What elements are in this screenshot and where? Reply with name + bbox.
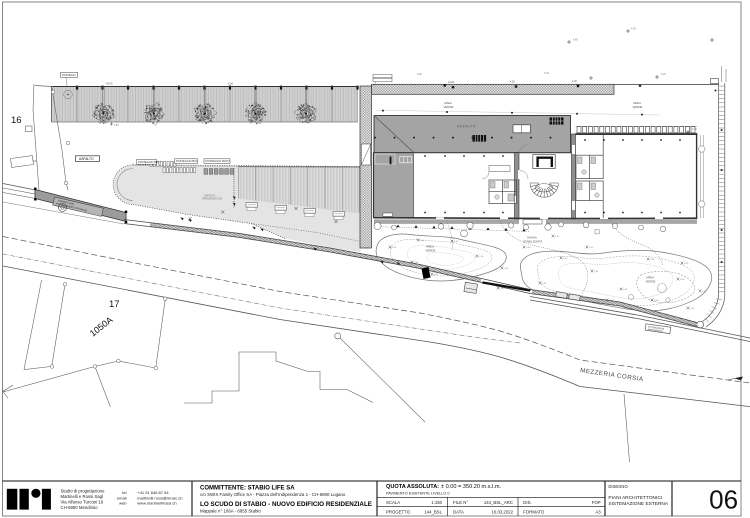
- svg-text:QUOTA ASSOLUTA:: QUOTA ASSOLUTA:: [386, 484, 439, 490]
- svg-text:(PENDENZA 2%): (PENDENZA 2%): [202, 197, 222, 201]
- svg-text:4.40: 4.40: [692, 128, 697, 131]
- svg-text:VERDE: VERDE: [426, 248, 436, 252]
- svg-text:A3: A3: [595, 509, 601, 514]
- svg-text:4.50: 4.50: [114, 124, 119, 127]
- svg-text:Martinelli e Rossi Sagl: Martinelli e Rossi Sagl: [61, 494, 104, 499]
- svg-text:POSTEGGIO MOTO: POSTEGGIO MOTO: [206, 159, 230, 163]
- svg-text:16: 16: [11, 115, 22, 126]
- svg-text:VERDE: VERDE: [646, 279, 656, 283]
- svg-text:VERDE: VERDE: [633, 105, 643, 109]
- svg-text:06: 06: [709, 484, 738, 514]
- svg-text:4.20: 4.20: [661, 73, 666, 76]
- svg-text:FILE N°: FILE N°: [453, 500, 468, 505]
- svg-text:web: web: [119, 501, 127, 506]
- svg-text:+41 91 646 87 54: +41 91 646 87 54: [137, 490, 169, 495]
- svg-text:FOP: FOP: [592, 500, 601, 505]
- svg-text:PAVIMENTO ESISTENTE LIVELLO 0: PAVIMENTO ESISTENTE LIVELLO 0: [386, 492, 450, 496]
- svg-text:DATA: DATA: [453, 509, 464, 514]
- svg-text:FORMATO: FORMATO: [523, 509, 545, 514]
- svg-text:4.90: 4.90: [417, 73, 422, 76]
- svg-text:4.50: 4.50: [631, 28, 636, 31]
- svg-text:www.martinellirossi.ch: www.martinellirossi.ch: [137, 501, 176, 506]
- svg-text:PIANI ARCHITETTONICI: PIANI ARCHITETTONICI: [608, 495, 662, 501]
- svg-text:4.00: 4.00: [572, 80, 577, 83]
- svg-text:COMMITTENTE: STABIO LIFE SA: COMMITTENTE: STABIO LIFE SA: [200, 485, 295, 491]
- svg-text:c/o SWIX Family Office SA - Pi: c/o SWIX Family Office SA - Piazza dell’…: [200, 492, 346, 497]
- svg-text:4.50: 4.50: [510, 81, 515, 84]
- svg-text:email: email: [117, 495, 127, 500]
- svg-text:ASFALTO: ASFALTO: [457, 124, 476, 128]
- svg-text:± 0.00 = 350.20 m.s.l.m.: ± 0.00 = 350.20 m.s.l.m.: [441, 484, 502, 490]
- svg-text:44.30: 44.30: [448, 81, 455, 84]
- svg-text:4.30: 4.30: [544, 72, 549, 75]
- svg-text:Mappale n° 106A - 6855 Stabio: Mappale n° 106A - 6855 Stabio: [200, 508, 261, 513]
- svg-text:VERDE: VERDE: [444, 105, 454, 109]
- svg-text:POSTEGGIO BICI: POSTEGGIO BICI: [138, 160, 160, 164]
- svg-text:Studio di progettazione: Studio di progettazione: [61, 488, 106, 493]
- svg-text:1:150: 1:150: [431, 500, 442, 505]
- svg-text:SISTEMAZIONE ESTERNA: SISTEMAZIONE ESTERNA: [608, 501, 669, 507]
- svg-text:10.03.2022: 10.03.2022: [491, 509, 513, 514]
- svg-text:SCALA: SCALA: [386, 500, 400, 505]
- svg-text:martinelli.rossi@mrarc.ch: martinelli.rossi@mrarc.ch: [137, 495, 182, 500]
- svg-text:ASFALTO: ASFALTO: [79, 157, 94, 161]
- svg-text:CH-6850 Mendrisio: CH-6850 Mendrisio: [61, 505, 99, 510]
- svg-text:tel: tel: [122, 490, 126, 495]
- svg-text:144_BSL_ARC: 144_BSL_ARC: [484, 500, 513, 505]
- svg-text:POSTEGGIO BICI: POSTEGGIO BICI: [176, 159, 198, 163]
- svg-text:DIS.: DIS.: [523, 500, 531, 505]
- svg-text:DISEGNO: DISEGNO: [608, 484, 628, 489]
- svg-text:LO SCUDO DI STABIO - NUOVO EDI: LO SCUDO DI STABIO - NUOVO EDIFICIO RESI…: [200, 501, 372, 508]
- svg-text:STABILIZZATA: STABILIZZATA: [523, 239, 542, 243]
- svg-text:5.00: 5.00: [228, 81, 234, 85]
- svg-text:Via Alfonso Turconi 16: Via Alfonso Turconi 16: [61, 499, 104, 504]
- svg-text:17: 17: [109, 299, 120, 310]
- svg-text:144_BSL: 144_BSL: [424, 509, 442, 514]
- svg-text:4.60: 4.60: [573, 39, 578, 42]
- svg-text:45.00: 45.00: [106, 81, 113, 85]
- svg-text:PROGETTO: PROGETTO: [386, 509, 411, 514]
- svg-text:POSTEGGI: POSTEGGI: [62, 73, 76, 77]
